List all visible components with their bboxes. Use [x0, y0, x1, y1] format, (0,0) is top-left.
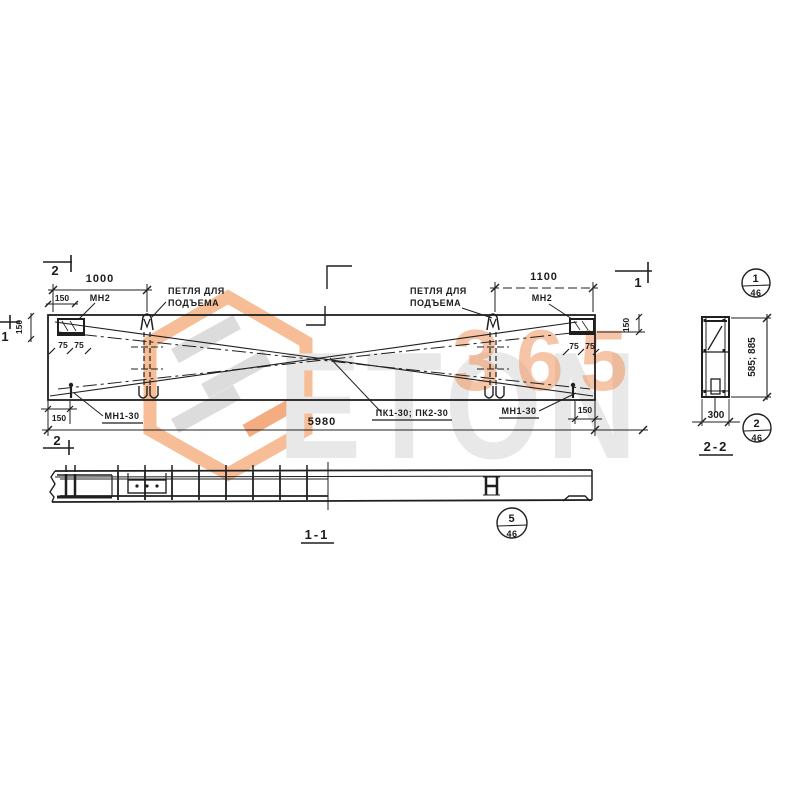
cut-marker-1-right: 1 [615, 262, 652, 290]
mn1-right-text: МН1-30 [501, 406, 536, 416]
cut-marker-2-bottom: 2 [43, 433, 74, 455]
section-1-1: 1-1 5 46 [50, 462, 592, 543]
dim-150-br-text: 150 [578, 405, 592, 415]
callout-5-den: 46 [506, 529, 517, 539]
beam-left-break [50, 471, 55, 502]
label-loop-right: ПЕТЛЯ ДЛЯ ПОДЪЕМА [410, 286, 492, 318]
cut-2-label-bottom: 2 [53, 433, 62, 448]
label-mn2-left: МН2 [90, 293, 111, 303]
callout-1-46: 1 46 [742, 269, 770, 298]
callout-1-num: 1 [752, 273, 759, 285]
dim-150-topleft-text: 150 [55, 293, 69, 303]
dim-150-bl-text: 150 [52, 413, 66, 423]
mn1-left-text: МН1-30 [104, 411, 139, 421]
section-2-2: 585; 885 300 2-2 1 46 2 46 [692, 269, 771, 455]
beam-stirrup-box [128, 473, 166, 493]
anchor-left [69, 383, 73, 398]
lifting-loop-left [131, 314, 163, 398]
dim-150-side-left-text: 150 [14, 320, 24, 334]
leader-mn2-right [549, 304, 572, 319]
dim-1100-text: 1100 [530, 271, 558, 283]
break-mark-top [327, 266, 352, 289]
dim-1000-text: 1000 [86, 273, 114, 285]
section-2-2-title: 2-2 [704, 439, 729, 454]
label-mn1-right: МН1-30 [499, 393, 576, 418]
cut-1-label: 1 [634, 275, 643, 290]
pk-text: ПК1-30; ПК2-30 [376, 408, 448, 418]
dim-5980-text: 5980 [308, 416, 336, 428]
callout-2-num: 2 [753, 418, 760, 430]
panel-diagonals [50, 322, 593, 396]
label-mn1-left: МН1-30 [74, 393, 143, 423]
dim-150-bottom-right: 150 [568, 401, 602, 436]
plate-75-left-b: 75 [74, 340, 84, 350]
leader-mn2-left [79, 303, 95, 319]
dim-1100: 1100 [490, 271, 598, 312]
embed-plate-right: 75 75 [563, 319, 599, 355]
dim-150-side-right: 150 [597, 314, 645, 335]
dim-300-text: 300 [708, 410, 725, 421]
dim-150-topleft: 150 [45, 293, 78, 307]
beam-end-channel [57, 474, 112, 498]
loop-right-line2: ПОДЪЕМА [410, 298, 461, 308]
lifting-loop-right [477, 314, 509, 398]
dim-150-side-right-text: 150 [621, 318, 631, 332]
plate-75-left-a: 75 [58, 340, 68, 350]
dim-150-side-left: 150 [14, 313, 34, 342]
dim-585-885-text: 585; 885 [747, 337, 758, 377]
plate-75-right-a: 75 [569, 341, 579, 351]
loop-left-line1: ПЕТЛЯ ДЛЯ [168, 286, 225, 296]
blueprint: 2 2 1 1 [0, 0, 800, 800]
callout-2-46: 2 46 [743, 414, 771, 443]
label-mn2-right: МН2 [532, 293, 553, 303]
label-loop-left: ПЕТЛЯ ДЛЯ ПОДЪЕМА [152, 286, 225, 317]
callout-5-num: 5 [508, 513, 515, 525]
cut-1-label-left: 1 [1, 329, 10, 344]
loop-left-line2: ПОДЪЕМА [168, 298, 219, 308]
drawing-canvas: ETON 365 2 2 1 [0, 0, 800, 800]
cut-2-label: 2 [51, 263, 60, 278]
loop-right-line1: ПЕТЛЯ ДЛЯ [410, 286, 467, 296]
plan-view: 2 2 1 1 [0, 255, 652, 455]
beam-embed-h [483, 477, 500, 495]
plate-75-right-b: 75 [585, 341, 595, 351]
callout-1-den: 46 [750, 288, 761, 298]
section-1-1-title: 1-1 [305, 527, 330, 542]
cut-marker-2-top: 2 [43, 255, 72, 278]
callout-5-46: 5 46 [497, 508, 527, 539]
callout-2-den: 46 [751, 433, 762, 443]
